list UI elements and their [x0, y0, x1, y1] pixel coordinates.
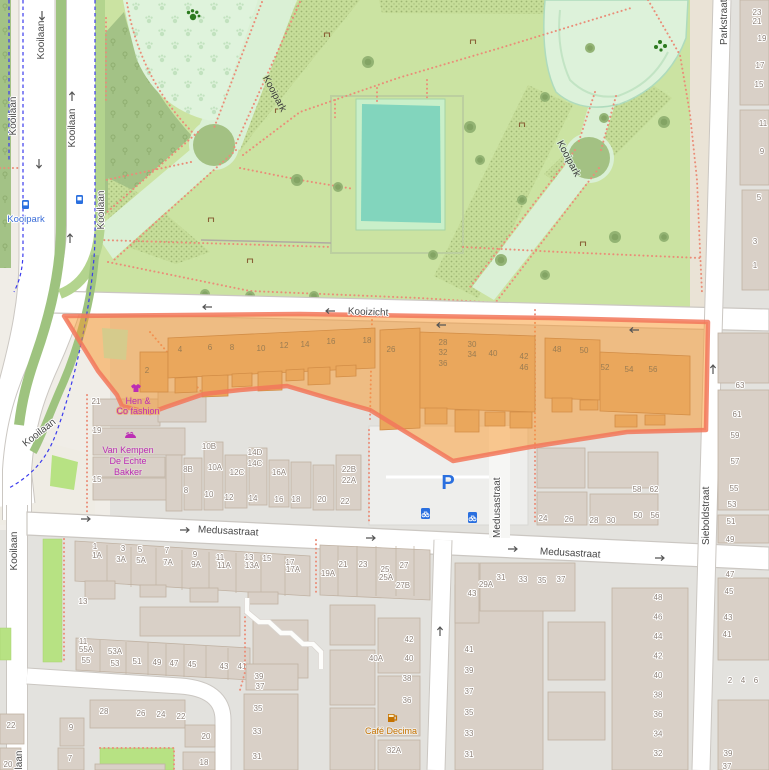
- svg-text:18: 18: [200, 758, 209, 767]
- svg-text:22: 22: [7, 721, 16, 730]
- svg-text:17A: 17A: [286, 565, 301, 574]
- svg-text:Hen &: Hen &: [125, 396, 150, 406]
- svg-text:37: 37: [723, 762, 732, 770]
- svg-text:16A: 16A: [272, 468, 287, 477]
- svg-text:28: 28: [439, 338, 448, 347]
- svg-text:22B: 22B: [342, 465, 356, 474]
- svg-text:7: 7: [68, 754, 73, 763]
- svg-text:27B: 27B: [396, 581, 410, 590]
- svg-text:22: 22: [341, 497, 350, 506]
- svg-text:35: 35: [465, 708, 474, 717]
- svg-text:11: 11: [79, 637, 88, 646]
- svg-text:19: 19: [758, 34, 767, 43]
- svg-text:62: 62: [650, 485, 659, 494]
- svg-text:46: 46: [654, 613, 663, 622]
- svg-text:49: 49: [726, 535, 735, 544]
- svg-text:51: 51: [727, 517, 736, 526]
- svg-text:14: 14: [249, 494, 258, 503]
- svg-text:50: 50: [634, 511, 643, 520]
- svg-text:Co fashion: Co fashion: [116, 406, 159, 416]
- svg-text:5A: 5A: [136, 556, 146, 565]
- svg-text:46: 46: [520, 363, 529, 372]
- svg-text:49: 49: [153, 658, 162, 667]
- svg-text:53: 53: [111, 659, 120, 668]
- svg-text:40: 40: [405, 654, 414, 663]
- svg-text:45: 45: [725, 587, 734, 596]
- svg-text:2: 2: [728, 676, 733, 685]
- svg-text:35: 35: [254, 704, 263, 713]
- svg-text:31: 31: [253, 752, 262, 761]
- svg-text:58: 58: [633, 485, 642, 494]
- svg-text:37: 37: [256, 682, 265, 691]
- svg-text:39: 39: [465, 666, 474, 675]
- svg-text:16: 16: [327, 337, 336, 346]
- svg-text:10: 10: [257, 344, 266, 353]
- svg-text:55A: 55A: [79, 645, 94, 654]
- svg-text:2: 2: [145, 366, 150, 375]
- svg-text:6: 6: [208, 343, 213, 352]
- svg-text:43: 43: [724, 613, 733, 622]
- svg-text:10: 10: [205, 490, 214, 499]
- svg-text:8B: 8B: [183, 465, 193, 474]
- svg-text:16: 16: [275, 495, 284, 504]
- svg-text:63: 63: [736, 381, 745, 390]
- svg-text:36: 36: [403, 696, 412, 705]
- svg-text:13: 13: [79, 597, 88, 606]
- svg-text:Medusastraat: Medusastraat: [492, 477, 503, 538]
- svg-text:42: 42: [654, 652, 663, 661]
- svg-text:14D: 14D: [248, 448, 263, 457]
- svg-text:17: 17: [756, 61, 765, 70]
- svg-text:Bakker: Bakker: [114, 467, 142, 477]
- svg-text:37: 37: [465, 687, 474, 696]
- svg-text:Sieboldstraat: Sieboldstraat: [701, 486, 712, 545]
- svg-text:40: 40: [654, 671, 663, 680]
- svg-text:31: 31: [465, 750, 474, 759]
- svg-text:48: 48: [654, 593, 663, 602]
- svg-text:19A: 19A: [321, 569, 336, 578]
- svg-text:20: 20: [4, 760, 13, 769]
- svg-text:36: 36: [654, 710, 663, 719]
- svg-text:33: 33: [253, 727, 262, 736]
- svg-text:39: 39: [255, 672, 264, 681]
- svg-text:21: 21: [92, 397, 101, 406]
- svg-text:14C: 14C: [248, 459, 263, 468]
- svg-text:10B: 10B: [202, 442, 216, 451]
- svg-text:33: 33: [519, 575, 528, 584]
- svg-text:9A: 9A: [191, 560, 201, 569]
- svg-text:40: 40: [489, 349, 498, 358]
- svg-text:Kooipark: Kooipark: [7, 214, 45, 225]
- svg-text:25A: 25A: [379, 573, 394, 582]
- svg-text:38: 38: [403, 674, 412, 683]
- svg-text:9: 9: [193, 550, 198, 559]
- svg-text:P: P: [441, 472, 454, 494]
- svg-text:Kooilaan: Kooilaan: [36, 21, 47, 60]
- svg-text:21: 21: [753, 17, 762, 26]
- svg-text:34: 34: [468, 350, 477, 359]
- svg-text:35: 35: [538, 576, 547, 585]
- svg-text:36: 36: [439, 359, 448, 368]
- svg-text:15: 15: [755, 80, 764, 89]
- svg-text:20: 20: [202, 732, 211, 741]
- svg-text:20: 20: [318, 495, 327, 504]
- svg-text:4: 4: [178, 345, 183, 354]
- svg-text:24: 24: [157, 710, 166, 719]
- svg-text:26: 26: [565, 515, 574, 524]
- svg-text:Kooilaan: Kooilaan: [9, 532, 20, 571]
- svg-text:1: 1: [93, 542, 98, 551]
- svg-text:24: 24: [539, 514, 548, 523]
- svg-text:47: 47: [726, 570, 735, 579]
- svg-text:15: 15: [263, 554, 272, 563]
- svg-text:26: 26: [137, 709, 146, 718]
- svg-text:12C: 12C: [230, 468, 245, 477]
- svg-text:42: 42: [520, 352, 529, 361]
- svg-text:22: 22: [177, 712, 186, 721]
- svg-text:41: 41: [723, 630, 732, 639]
- svg-text:3: 3: [753, 237, 758, 246]
- svg-text:54: 54: [625, 365, 634, 374]
- svg-text:56: 56: [649, 365, 658, 374]
- svg-text:6: 6: [754, 676, 759, 685]
- svg-text:Kooizicht: Kooizicht: [348, 306, 389, 318]
- svg-text:50: 50: [580, 346, 589, 355]
- svg-text:32: 32: [439, 348, 448, 357]
- svg-text:43: 43: [468, 589, 477, 598]
- svg-text:34: 34: [654, 730, 663, 739]
- svg-text:De Echte: De Echte: [109, 456, 146, 466]
- svg-text:8: 8: [184, 486, 189, 495]
- svg-text:26: 26: [387, 345, 396, 354]
- svg-text:32A: 32A: [387, 746, 402, 755]
- svg-text:10A: 10A: [208, 463, 223, 472]
- svg-text:31: 31: [497, 573, 506, 582]
- svg-text:Van Kempen: Van Kempen: [102, 445, 153, 455]
- svg-text:14: 14: [301, 340, 310, 349]
- svg-text:18: 18: [363, 336, 372, 345]
- svg-text:55: 55: [730, 484, 739, 493]
- svg-text:Kooilaan: Kooilaan: [8, 97, 19, 136]
- svg-text:55: 55: [82, 656, 91, 665]
- svg-text:12: 12: [225, 493, 234, 502]
- svg-text:21: 21: [339, 560, 348, 569]
- svg-text:44: 44: [654, 632, 663, 641]
- svg-text:27: 27: [400, 561, 409, 570]
- svg-text:19: 19: [93, 426, 102, 435]
- svg-text:15: 15: [93, 475, 102, 484]
- svg-text:Kooilaan: Kooilaan: [14, 751, 25, 770]
- svg-text:33: 33: [465, 729, 474, 738]
- svg-text:32: 32: [654, 749, 663, 758]
- svg-text:23: 23: [359, 560, 368, 569]
- svg-text:29A: 29A: [479, 580, 494, 589]
- svg-text:45: 45: [188, 660, 197, 669]
- svg-text:41: 41: [465, 645, 474, 654]
- svg-text:9: 9: [69, 723, 74, 732]
- svg-text:5: 5: [138, 545, 143, 554]
- svg-text:61: 61: [733, 410, 742, 419]
- svg-text:Café Decima: Café Decima: [365, 726, 417, 736]
- svg-text:7A: 7A: [163, 558, 173, 567]
- svg-text:30: 30: [468, 340, 477, 349]
- svg-text:12: 12: [280, 341, 289, 350]
- svg-text:28: 28: [100, 707, 109, 716]
- svg-text:57: 57: [731, 457, 740, 466]
- svg-text:53: 53: [728, 500, 737, 509]
- svg-text:48: 48: [553, 345, 562, 354]
- svg-text:23: 23: [753, 8, 762, 17]
- svg-text:3A: 3A: [116, 555, 126, 564]
- svg-text:3: 3: [121, 544, 126, 553]
- svg-text:7: 7: [165, 546, 170, 555]
- svg-text:22A: 22A: [342, 476, 357, 485]
- svg-text:1: 1: [753, 261, 758, 270]
- svg-text:Kooilaan: Kooilaan: [67, 109, 78, 148]
- svg-text:43: 43: [220, 662, 229, 671]
- svg-text:39: 39: [724, 749, 733, 758]
- svg-text:18: 18: [292, 495, 301, 504]
- svg-text:56: 56: [651, 511, 660, 520]
- svg-text:53A: 53A: [108, 647, 123, 656]
- svg-text:40A: 40A: [369, 654, 384, 663]
- svg-text:9: 9: [760, 147, 765, 156]
- svg-text:13A: 13A: [245, 561, 260, 570]
- svg-text:4: 4: [741, 676, 746, 685]
- svg-text:11: 11: [759, 119, 768, 128]
- svg-text:51: 51: [133, 657, 142, 666]
- svg-text:38: 38: [654, 691, 663, 700]
- svg-text:5: 5: [757, 193, 762, 202]
- svg-text:52: 52: [601, 363, 610, 372]
- svg-text:8: 8: [230, 343, 235, 352]
- svg-text:11A: 11A: [217, 561, 231, 570]
- svg-text:1A: 1A: [92, 551, 102, 560]
- svg-text:28: 28: [590, 516, 599, 525]
- svg-text:42: 42: [405, 635, 414, 644]
- svg-text:30: 30: [607, 516, 616, 525]
- svg-text:Kooilaan: Kooilaan: [96, 191, 107, 230]
- svg-text:47: 47: [170, 659, 179, 668]
- svg-text:37: 37: [557, 575, 566, 584]
- svg-text:Parkstraat: Parkstraat: [719, 0, 730, 45]
- svg-text:59: 59: [731, 431, 740, 440]
